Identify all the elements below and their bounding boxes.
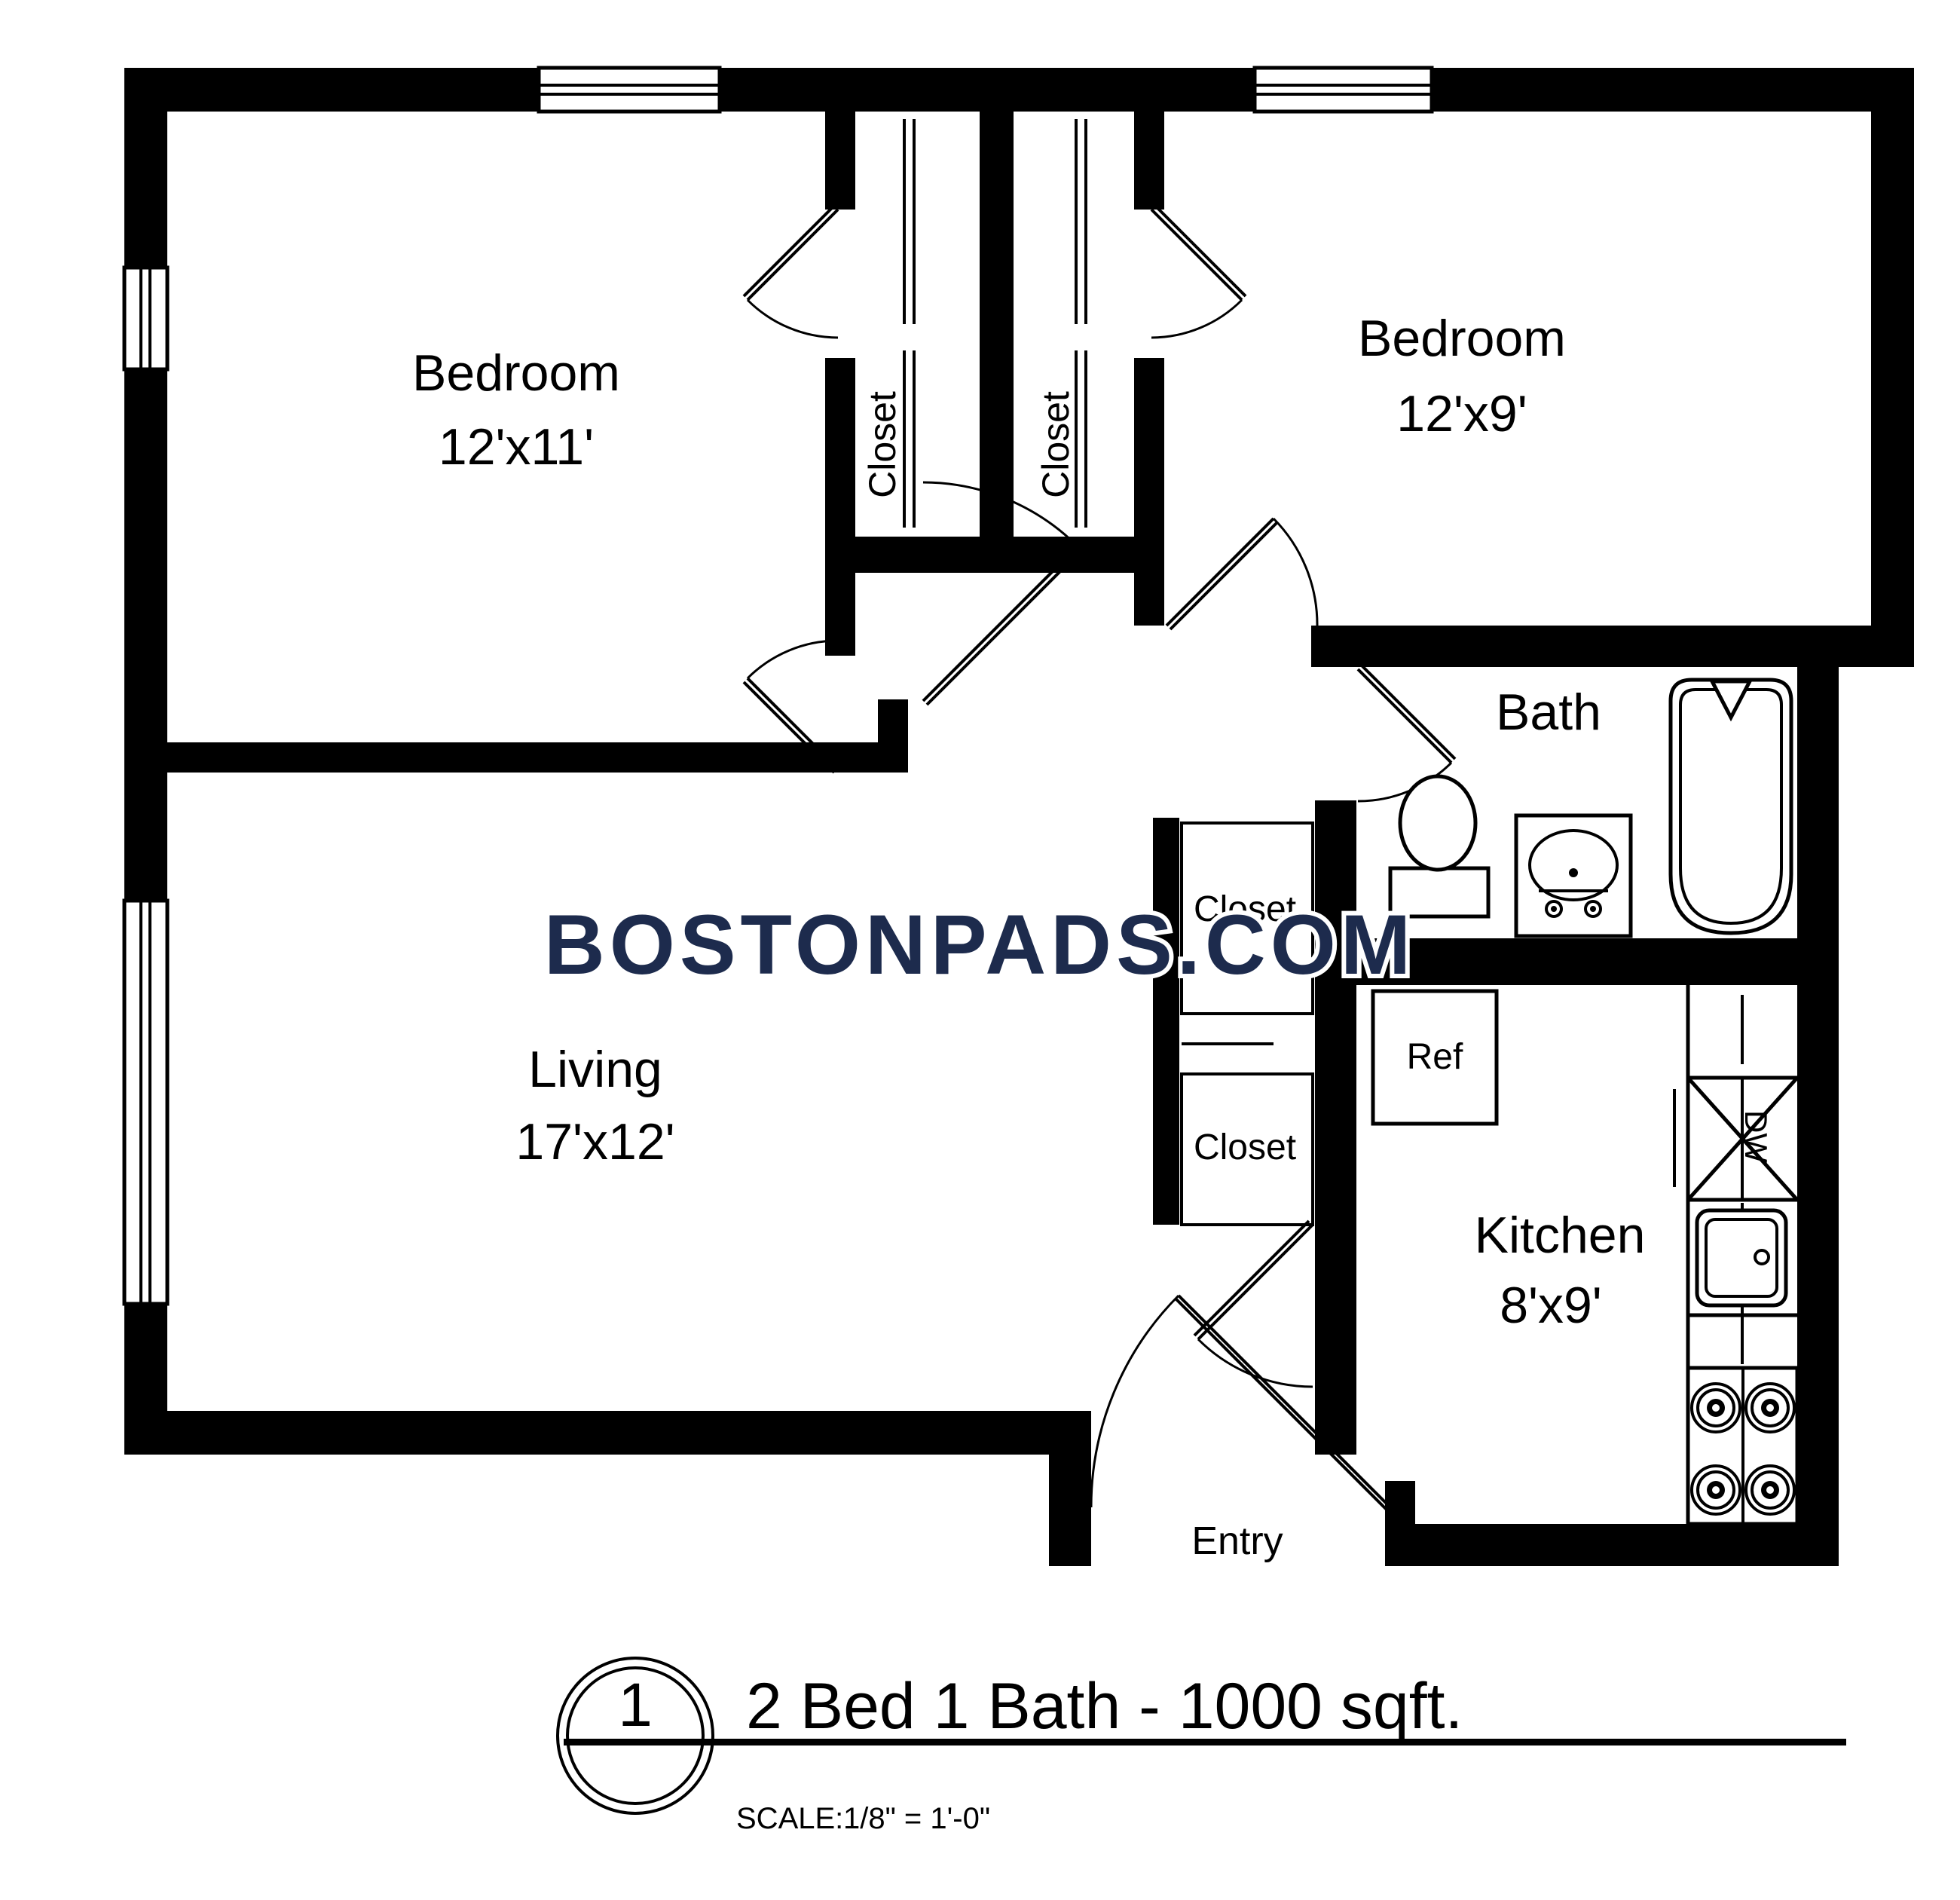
burner-icon <box>1746 1466 1794 1514</box>
dishwasher-icon <box>1674 1078 1797 1200</box>
kitchen-label: Kitchen <box>1475 1207 1646 1264</box>
bedroom-left-label: Bedroom <box>412 344 620 402</box>
hall-closet-lower-label: Closet <box>1194 1127 1296 1167</box>
windows <box>124 68 1432 1304</box>
sink-icon <box>1516 815 1631 936</box>
window-icon <box>539 68 720 112</box>
window-icon <box>124 268 167 369</box>
burner-icon <box>1746 1384 1794 1432</box>
burner-icon <box>1692 1466 1740 1514</box>
bedroom-right-label: Bedroom <box>1358 310 1566 367</box>
refrigerator-label: Ref <box>1407 1037 1463 1077</box>
dishwasher-label: DW <box>1738 1110 1774 1163</box>
window-icon <box>1255 68 1432 112</box>
bathtub-icon <box>1671 680 1791 933</box>
bedroom-left-dims: 12'x11' <box>439 418 594 476</box>
door-swing <box>1167 519 1317 629</box>
bedroom-left-closet-label: Closet <box>861 391 904 498</box>
floor-plan-svg: Bedroom 12'x11' Closet Closet Bedroom 12… <box>0 0 1960 1900</box>
kitchen-dims: 8'x9' <box>1500 1277 1602 1334</box>
plan-number: 1 <box>618 1671 653 1739</box>
living-dims: 17'x12' <box>515 1113 674 1170</box>
bedroom-right-dims: 12'x9' <box>1396 385 1527 442</box>
living-label: Living <box>528 1041 662 1098</box>
entry-label: Entry <box>1191 1519 1283 1563</box>
scale-value: 1/8" = 1'-0" <box>843 1802 990 1835</box>
burner-icon <box>1692 1384 1740 1432</box>
door-swing <box>1151 206 1246 338</box>
window-icon <box>124 901 167 1304</box>
floor-plan-page: Bedroom 12'x11' Closet Closet Bedroom 12… <box>0 0 1960 1900</box>
kitchen-sink-icon <box>1697 1203 1786 1364</box>
bedroom-right-closet-label: Closet <box>1035 391 1077 498</box>
plan-title: 2 Bed 1 Bath - 1000 sqft. <box>746 1670 1463 1742</box>
scale-label: SCALE: <box>736 1802 843 1835</box>
door-swing <box>744 206 838 338</box>
walls <box>124 68 1914 1566</box>
door-swing <box>1194 1221 1313 1387</box>
toilet-icon <box>1390 776 1488 916</box>
stove-icon <box>1688 1368 1797 1524</box>
watermark-text: BOSTONPADS.COM <box>544 898 1415 992</box>
title-block: 1 2 Bed 1 Bath - 1000 sqft. SCALE: 1/8" … <box>558 1658 1846 1835</box>
bath-label: Bath <box>1496 684 1601 741</box>
